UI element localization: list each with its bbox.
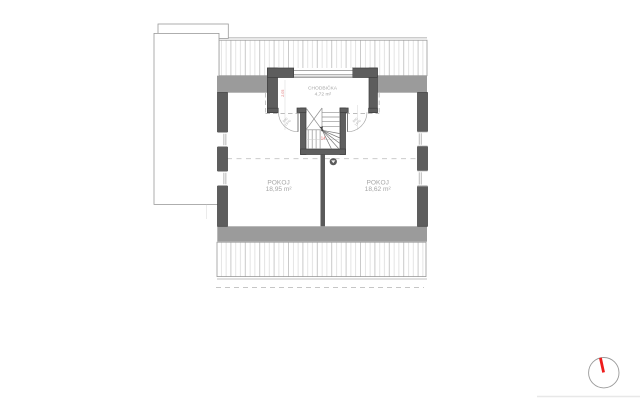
svg-text:18,62 m²: 18,62 m²: [365, 186, 392, 193]
svg-text:CHODBIČKA: CHODBIČKA: [308, 85, 338, 92]
svg-text:4,72 m²: 4,72 m²: [315, 91, 332, 97]
svg-text:2.05: 2.05: [281, 90, 285, 97]
svg-text:14: 14: [321, 135, 326, 140]
svg-text:18,95 m²: 18,95 m²: [266, 186, 293, 193]
